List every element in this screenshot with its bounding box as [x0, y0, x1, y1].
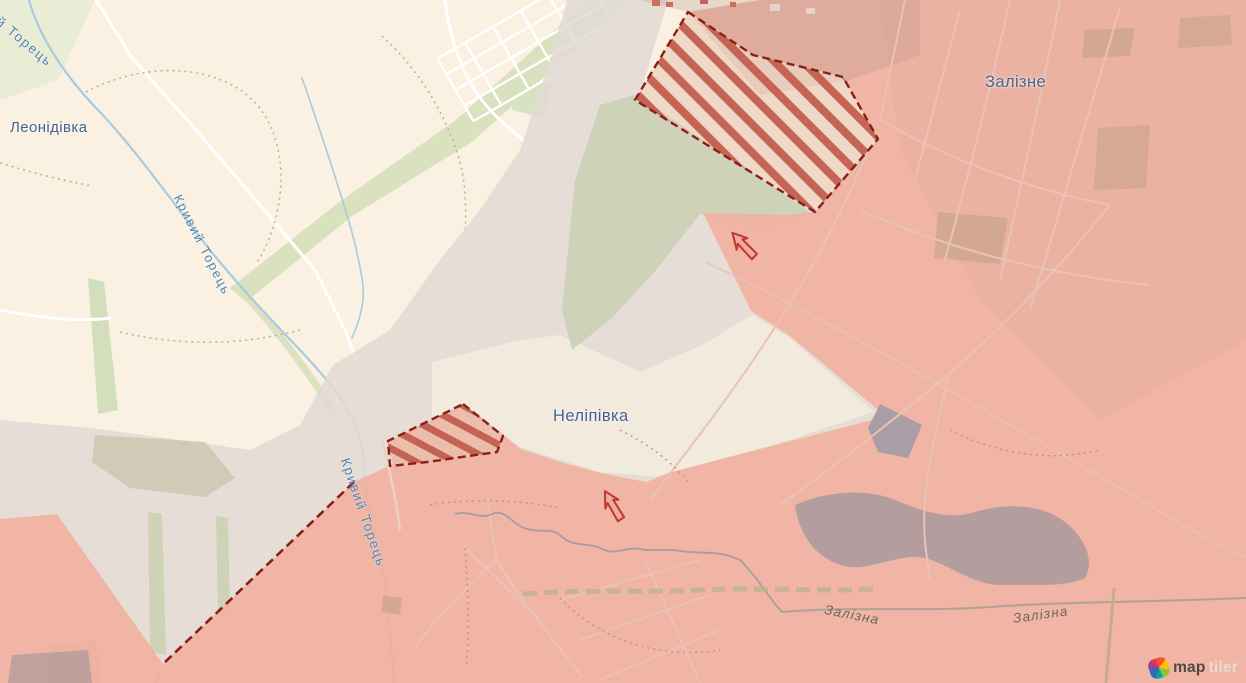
maptiler-pinwheel-icon — [1146, 655, 1171, 680]
maptiler-attribution-link[interactable]: map tiler — [1149, 658, 1238, 678]
map-canvas[interactable]: Леонідівка Залізне Неліпівка ий Торець К… — [0, 0, 1246, 683]
pond-water-sw — [8, 650, 92, 683]
maptiler-brand-tiler: tiler — [1209, 659, 1238, 677]
map-graphics — [0, 0, 1246, 683]
maptiler-brand-map: map — [1173, 659, 1205, 677]
